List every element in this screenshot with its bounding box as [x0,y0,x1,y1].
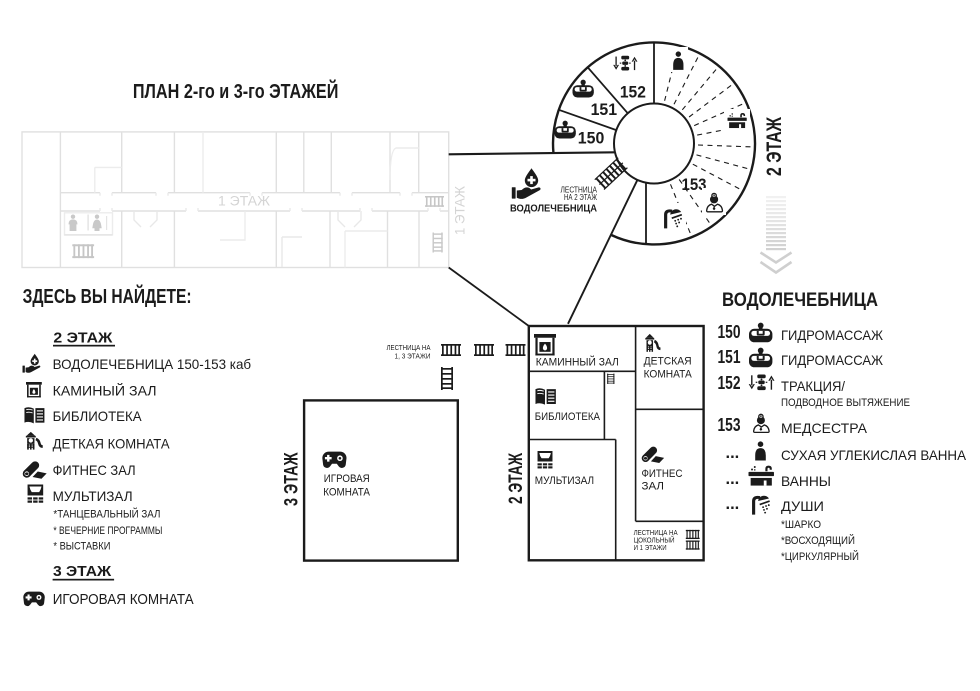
svg-text:152: 152 [620,82,646,101]
svg-text:ВОДОЛЕЧЕБНИЦА: ВОДОЛЕЧЕБНИЦА [510,204,597,215]
svg-text:151: 151 [591,100,618,119]
svg-text:СУХАЯ УГЛЕКИСЛАЯ ВАННА: СУХАЯ УГЛЕКИСЛАЯ ВАННА [781,447,967,463]
svg-text:*ТАНЦЕВАЛЬНЫЙ ЗАЛ: *ТАНЦЕВАЛЬНЫЙ ЗАЛ [53,508,160,521]
svg-text:...: ... [726,444,740,462]
svg-text:*ЦИРКУЛЯРНЫЙ: *ЦИРКУЛЯРНЫЙ [781,550,859,563]
svg-text:1, 3 ЭТАЖИ: 1, 3 ЭТАЖИ [395,352,431,361]
svg-text:2 ЭТАЖ: 2 ЭТАЖ [763,116,786,176]
svg-text:2 ЭТАЖ: 2 ЭТАЖ [505,453,527,504]
svg-text:...: ... [726,470,740,488]
svg-text:ЗДЕСЬ ВЫ НАЙДЕТЕ:: ЗДЕСЬ ВЫ НАЙДЕТЕ: [23,284,192,308]
svg-text:НА 2 ЭТАЖ: НА 2 ЭТАЖ [564,193,598,202]
svg-text:МЕДСЕСТРА: МЕДСЕСТРА [781,420,868,436]
svg-text:150: 150 [578,128,605,147]
svg-text:ВОДОЛЕЧЕБНИЦА: ВОДОЛЕЧЕБНИЦА [722,290,878,311]
svg-text:*ШАРКО: *ШАРКО [781,519,821,531]
svg-text:ИГОРОВАЯ КОМНАТА: ИГОРОВАЯ КОМНАТА [53,591,194,608]
svg-text:И 1 ЭТАЖИ: И 1 ЭТАЖИ [634,543,667,552]
svg-text:ПОДВОДНОЕ ВЫТЯЖЕНИЕ: ПОДВОДНОЕ ВЫТЯЖЕНИЕ [781,397,910,409]
svg-text:КАМИНЫЙ ЗАЛ: КАМИНЫЙ ЗАЛ [53,382,157,399]
svg-text:* ВЫСТАВКИ: * ВЫСТАВКИ [53,540,110,552]
svg-text:1 ЭТАЖ: 1 ЭТАЖ [453,185,468,235]
svg-text:КАМИННЫЙ ЗАЛ: КАМИННЫЙ ЗАЛ [536,356,619,369]
svg-text:152: 152 [718,373,741,393]
svg-text:3 ЭТАЖ: 3 ЭТАЖ [53,564,112,580]
svg-text:ДУШИ: ДУШИ [781,498,824,514]
svg-text:ТРАКЦИЯ/: ТРАКЦИЯ/ [781,378,845,394]
svg-text:КОМНАТА: КОМНАТА [323,486,371,498]
svg-text:ГИДРОМАССАЖ: ГИДРОМАССАЖ [781,352,883,368]
svg-text:150: 150 [718,322,741,342]
svg-text:151: 151 [718,347,741,367]
svg-text:МУЛЬТИЗАЛ: МУЛЬТИЗАЛ [53,488,133,504]
svg-text:ФИТНЕС ЗАЛ: ФИТНЕС ЗАЛ [53,462,136,478]
svg-text:153: 153 [718,415,741,435]
svg-text:ПЛАН 2-го и 3-го ЭТАЖЕЙ: ПЛАН 2-го и 3-го ЭТАЖЕЙ [133,79,339,103]
svg-text:ВОДОЛЕЧЕБНИЦА 150-153 каб: ВОДОЛЕЧЕБНИЦА 150-153 каб [53,356,252,372]
svg-text:МУЛЬТИЗАЛ: МУЛЬТИЗАЛ [535,475,594,487]
svg-text:3 ЭТАЖ: 3 ЭТАЖ [281,452,303,506]
svg-text:2 ЭТАЖ: 2 ЭТАЖ [53,330,113,346]
svg-text:...: ... [726,495,740,513]
svg-text:1 ЭТАЖ: 1 ЭТАЖ [218,194,271,209]
svg-text:ЗАЛ: ЗАЛ [642,481,665,493]
svg-text:ГИДРОМАССАЖ: ГИДРОМАССАЖ [781,327,883,343]
svg-text:*ВОСХОДЯЩИЙ: *ВОСХОДЯЩИЙ [781,534,855,547]
svg-text:БИБЛИОТЕКА: БИБЛИОТЕКА [535,411,601,423]
svg-text:ФИТНЕС: ФИТНЕС [642,468,683,480]
svg-text:БИБЛИОТЕКА: БИБЛИОТЕКА [53,408,143,424]
svg-text:* ВЕЧЕРНИЕ ПРОГРАММЫ: * ВЕЧЕРНИЕ ПРОГРАММЫ [53,525,162,537]
svg-text:ДЕТКАЯ КОМНАТА: ДЕТКАЯ КОМНАТА [53,436,171,452]
svg-text:ДЕТСКАЯ: ДЕТСКАЯ [644,356,692,368]
svg-text:ВАННЫ: ВАННЫ [781,473,831,489]
svg-text:КОМНАТА: КОМНАТА [644,368,693,380]
svg-text:ИГРОВАЯ: ИГРОВАЯ [324,473,370,485]
